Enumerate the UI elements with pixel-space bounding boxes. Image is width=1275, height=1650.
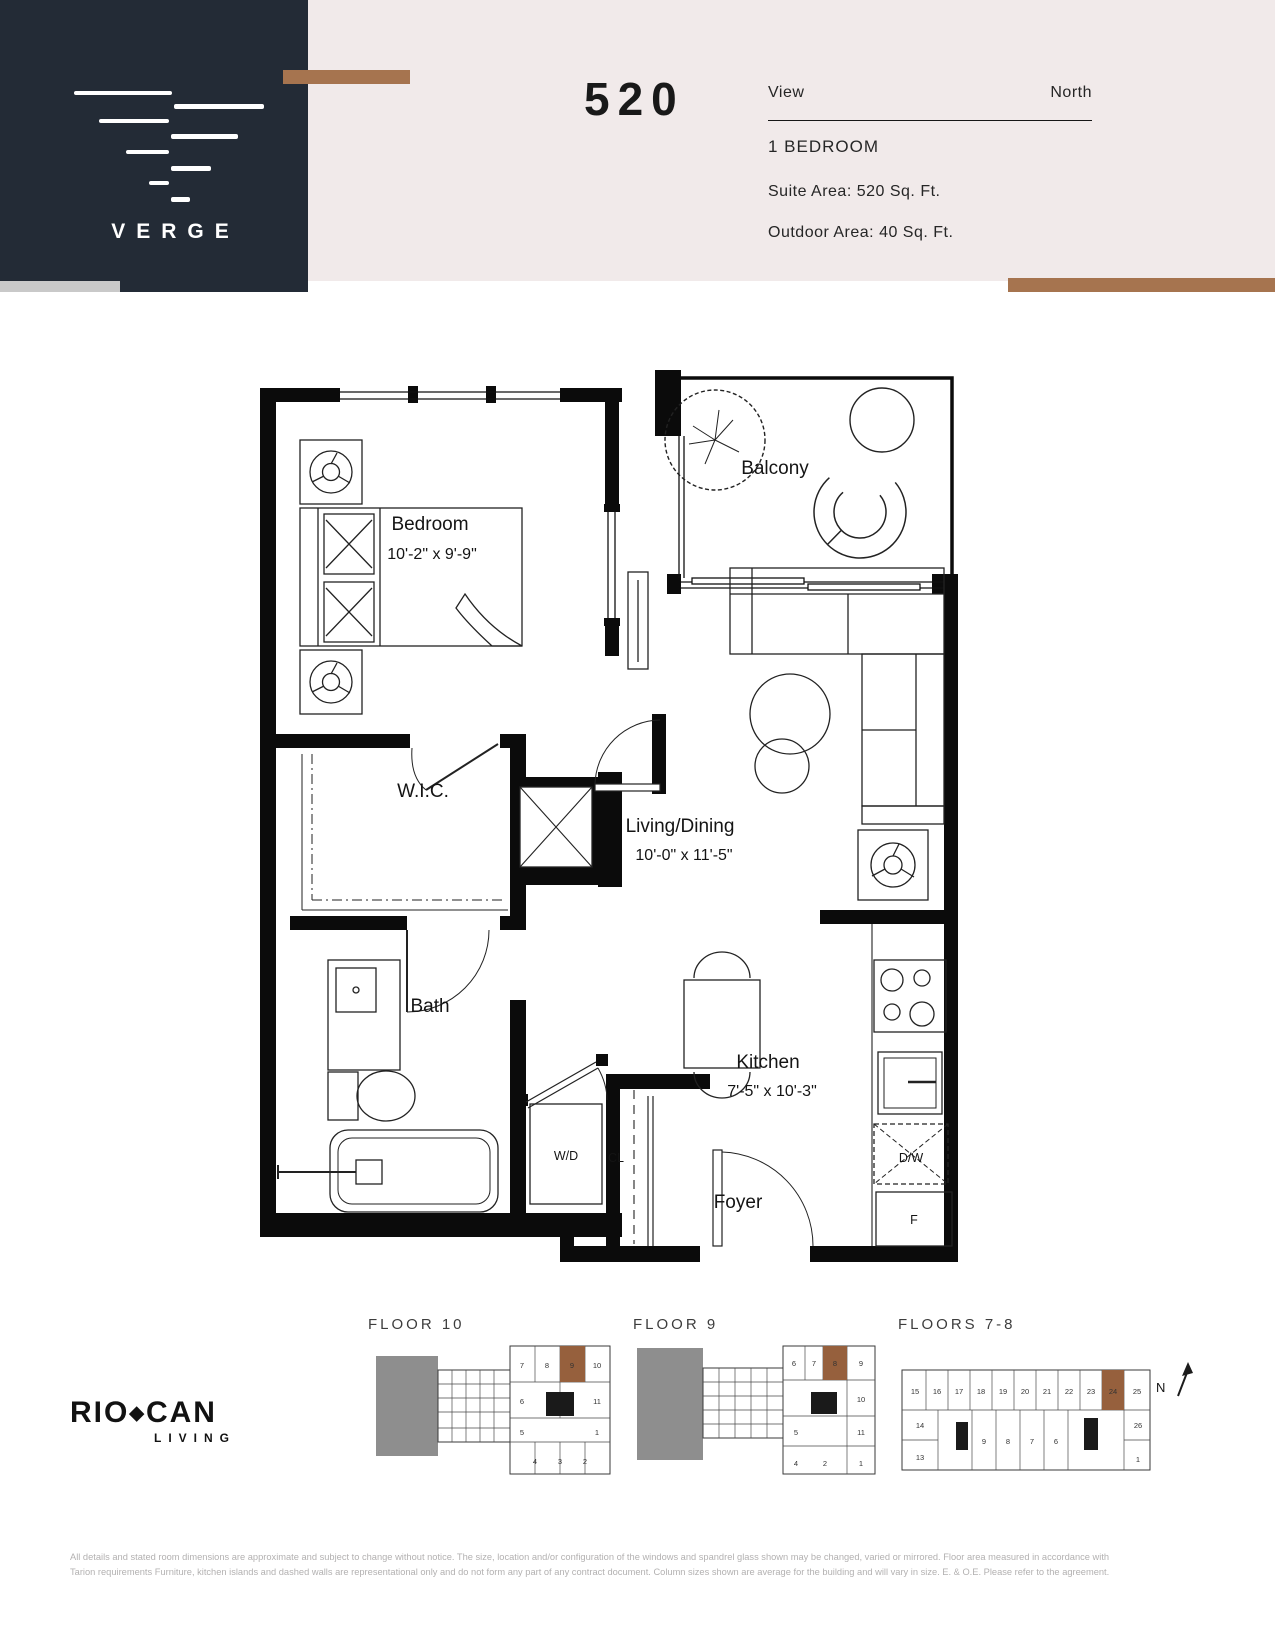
- kitchen-dims: 7'-5" x 10'-3": [727, 1083, 817, 1100]
- svg-text:N: N: [1156, 1380, 1165, 1395]
- disclaimer-line2: Tarion requirements Furniture, kitchen i…: [70, 1565, 1132, 1580]
- cl-closet: [634, 1090, 653, 1246]
- living-dims: 10'-0" x 11'-5": [635, 847, 732, 864]
- windows: [340, 392, 944, 618]
- disclaimer: All details and stated room dimensions a…: [70, 1550, 1132, 1579]
- svg-text:26: 26: [1134, 1421, 1142, 1430]
- disclaimer-line1: All details and stated room dimensions a…: [70, 1550, 1132, 1565]
- wic-label: W.I.C.: [397, 781, 449, 802]
- svg-text:6: 6: [520, 1397, 524, 1406]
- svg-text:18: 18: [977, 1387, 985, 1396]
- riocan-can: CAN: [146, 1396, 217, 1429]
- svg-text:24: 24: [1109, 1387, 1117, 1396]
- toilet-icon: [328, 1072, 358, 1120]
- riocan-logo: RIO◆CAN LIVING: [70, 1396, 238, 1445]
- svg-text:8: 8: [833, 1359, 837, 1368]
- riocan-rio: RIO: [70, 1396, 129, 1429]
- verge-logo-icon: [74, 91, 172, 95]
- view-label: View: [768, 84, 804, 102]
- svg-text:7: 7: [520, 1361, 524, 1370]
- foyer-label: Foyer: [714, 1192, 763, 1213]
- bath-label: Bath: [410, 996, 449, 1017]
- svg-text:11: 11: [593, 1397, 601, 1406]
- laundry-closet: [526, 1062, 607, 1204]
- riocan-living: LIVING: [70, 1431, 238, 1445]
- lounge-chair: [795, 447, 925, 577]
- outdoor-area: Outdoor Area: 40 Sq. Ft.: [768, 224, 1092, 242]
- svg-text:25: 25: [1133, 1387, 1141, 1396]
- svg-text:17: 17: [955, 1387, 963, 1396]
- svg-text:21: 21: [1043, 1387, 1051, 1396]
- svg-text:7: 7: [1030, 1437, 1034, 1446]
- suite-area: Suite Area: 520 Sq. Ft.: [768, 183, 1092, 201]
- brand-block: VERGE: [0, 0, 308, 292]
- view-row: View North: [768, 84, 1092, 102]
- svg-text:14: 14: [916, 1421, 924, 1430]
- shaft-box: [520, 787, 592, 867]
- svg-text:15: 15: [911, 1387, 919, 1396]
- svg-text:6: 6: [1054, 1437, 1058, 1446]
- svg-text:10: 10: [857, 1395, 865, 1404]
- svg-text:1: 1: [1136, 1455, 1140, 1464]
- unit-type: 1 BEDROOM: [768, 137, 1092, 157]
- keyplan-floors78-label: FLOORS 7-8: [898, 1316, 1016, 1333]
- kitchen-area: [872, 924, 952, 1246]
- bedroom-dims: 10'-2" x 9'-9": [387, 546, 477, 563]
- svg-text:5: 5: [794, 1428, 798, 1437]
- svg-text:8: 8: [1006, 1437, 1010, 1446]
- svg-text:4: 4: [533, 1457, 537, 1466]
- svg-text:23: 23: [1087, 1387, 1095, 1396]
- svg-text:9: 9: [570, 1361, 574, 1370]
- accent-bar-top: [283, 70, 410, 84]
- bedroom-area: [300, 440, 522, 714]
- keyplan-floors78: 15 16 17 18 19 20 21 22 23 24 25 14 13 9…: [898, 1340, 1153, 1480]
- north-arrow-icon: N: [1148, 1356, 1212, 1404]
- balcony-table: [850, 388, 914, 452]
- accent-bar-bottom: [1008, 278, 1275, 292]
- living-label: Living/Dining: [626, 816, 735, 837]
- svg-text:2: 2: [823, 1459, 827, 1468]
- svg-text:22: 22: [1065, 1387, 1073, 1396]
- wic-area: [302, 744, 508, 910]
- keyplan-floor10: 7 8 9 10 6 11 5 1 4 3 2: [368, 1340, 613, 1480]
- svg-text:7: 7: [812, 1359, 816, 1368]
- keyplan-floor9: 6 7 8 9 10 11 1 5 4 2: [633, 1340, 878, 1480]
- svg-text:5: 5: [520, 1428, 524, 1437]
- riocan-diamond-icon: ◆: [129, 1403, 146, 1424]
- bath-area: [278, 930, 498, 1212]
- svg-text:13: 13: [916, 1453, 924, 1462]
- cl-label: CL: [608, 1151, 624, 1165]
- svg-text:1: 1: [859, 1459, 863, 1468]
- balcony-area: Balcony: [665, 378, 952, 578]
- keyplan-floor9-label: FLOOR 9: [633, 1316, 718, 1333]
- balcony-label: Balcony: [741, 458, 809, 479]
- divider: [768, 120, 1092, 121]
- keyplan-floor10-label: FLOOR 10: [368, 1316, 465, 1333]
- dw-label: D/W: [899, 1151, 924, 1165]
- walls: [260, 370, 958, 1262]
- svg-text:10: 10: [593, 1361, 601, 1370]
- svg-text:1: 1: [595, 1428, 599, 1437]
- svg-text:6: 6: [792, 1359, 796, 1368]
- floor-plan: Balcony Bedroom 10'-2" x 9'-9": [260, 362, 958, 1262]
- svg-text:9: 9: [982, 1437, 986, 1446]
- svg-text:19: 19: [999, 1387, 1007, 1396]
- kitchen-label: Kitchen: [736, 1052, 799, 1073]
- view-value: North: [1050, 84, 1092, 102]
- stove-icon: [874, 960, 946, 1032]
- svg-text:16: 16: [933, 1387, 941, 1396]
- svg-text:11: 11: [857, 1428, 865, 1437]
- bedroom-label: Bedroom: [391, 514, 468, 535]
- gray-strip: [0, 281, 120, 292]
- svg-text:8: 8: [545, 1361, 549, 1370]
- svg-text:2: 2: [583, 1457, 587, 1466]
- fridge-label: F: [910, 1213, 918, 1227]
- unit-info: View North 1 BEDROOM Suite Area: 520 Sq.…: [768, 84, 1092, 242]
- svg-text:20: 20: [1021, 1387, 1029, 1396]
- svg-text:9: 9: [859, 1359, 863, 1368]
- unit-number: 520: [584, 72, 685, 126]
- svg-text:4: 4: [794, 1459, 798, 1468]
- floorplan-sheet: VERGE 520 View North 1 BEDROOM Suite Are…: [0, 0, 1275, 1650]
- svg-text:3: 3: [558, 1457, 562, 1466]
- wd-label: W/D: [554, 1149, 578, 1163]
- brand-name: VERGE: [70, 220, 270, 244]
